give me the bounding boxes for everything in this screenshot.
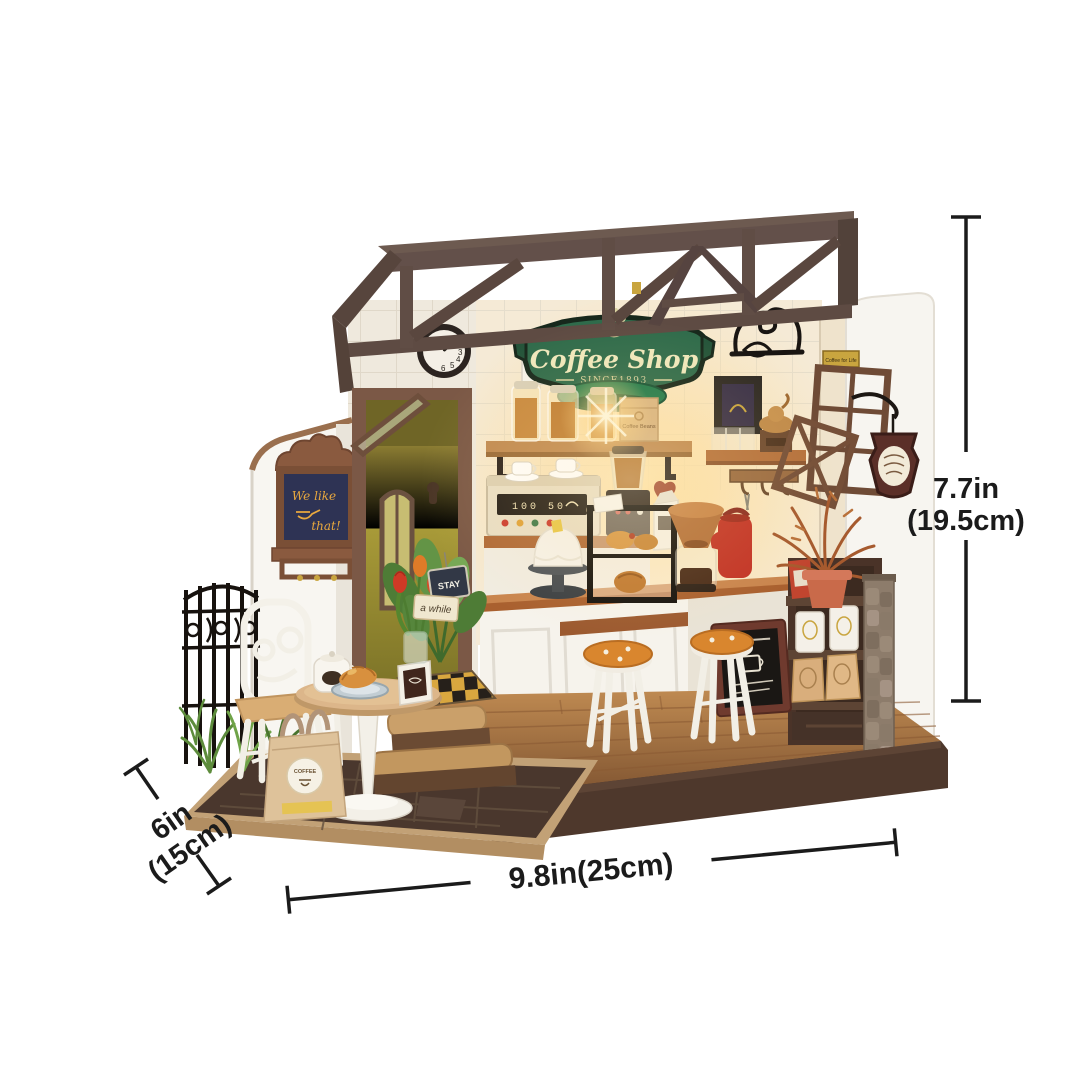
clock-number: 4	[456, 355, 461, 364]
clock-number: 6	[441, 364, 446, 373]
miniature-coffee-shop-scene: 1 2 3 4 5 6 Ac	[0, 0, 1080, 1080]
svg-text:COFFEE: COFFEE	[294, 769, 317, 775]
svg-text:that!: that!	[311, 519, 341, 533]
clock-number: 5	[450, 361, 455, 370]
chalkboard: We like that!	[272, 434, 360, 581]
svg-text:Coffee for Life: Coffee for Life	[825, 358, 857, 364]
svg-text:We like: We like	[292, 489, 336, 503]
svg-text:7.7in: 7.7in	[933, 473, 999, 505]
table-sign	[398, 661, 432, 705]
wall-plaque: Coffee for Life	[823, 351, 859, 367]
svg-text:(19.5cm): (19.5cm)	[907, 505, 1025, 537]
product-photo-canvas: 1 2 3 4 5 6 Ac	[0, 0, 1080, 1080]
awhile-sign: a while	[413, 594, 459, 621]
svg-text:a while: a while	[420, 603, 452, 616]
